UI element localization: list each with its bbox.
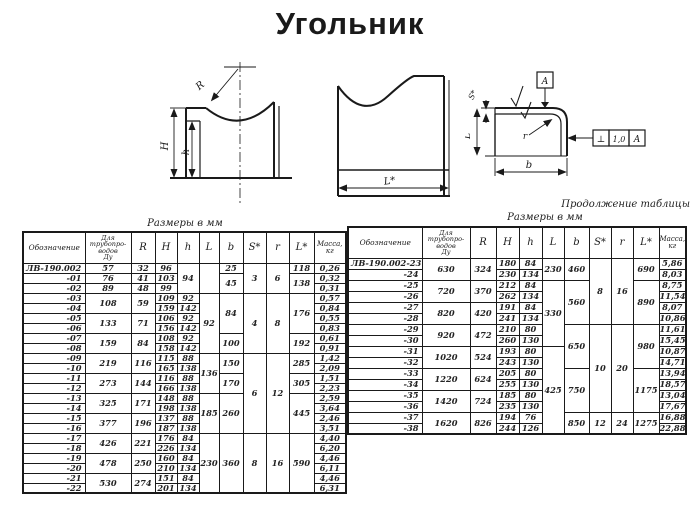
table-cell: 84: [519, 280, 542, 291]
table-cell: 92: [177, 293, 199, 303]
table-cell: 235: [496, 401, 519, 412]
table-cell: 10,86: [659, 313, 686, 324]
table-cell: 136: [199, 353, 219, 393]
table-cell: 16,88: [659, 412, 686, 423]
table-cell: 108: [155, 333, 177, 343]
table-cell: 13,94: [659, 368, 686, 379]
table-cell: -18: [23, 443, 85, 453]
table-cell: 820: [422, 302, 470, 324]
table-cell: 92: [177, 313, 199, 323]
table-cell: -01: [23, 273, 85, 283]
table-cell: 624: [470, 368, 496, 390]
table-cell: -14: [23, 403, 85, 413]
datum-letter: A: [541, 77, 549, 87]
table-cell: 426: [85, 433, 131, 453]
table-cell: -25: [348, 280, 422, 291]
table-cell: -36: [348, 401, 422, 412]
table-cell: 185: [199, 393, 219, 433]
table-cell: 241: [496, 313, 519, 324]
table-cell: -11: [23, 373, 85, 383]
table-cell: 980: [633, 324, 659, 368]
table-cell: 226: [155, 443, 177, 453]
tolerance-datum-letter: A: [633, 135, 641, 145]
table-cell: 273: [85, 373, 131, 393]
table-cell: -06: [23, 323, 85, 333]
table-cell: 17,67: [659, 401, 686, 412]
table-cell: 4: [243, 293, 266, 353]
table-cell: 210: [155, 463, 177, 473]
column-header: Масса, кг: [314, 232, 346, 263]
table-cell: -31: [348, 346, 422, 357]
table-cell: 57: [85, 263, 131, 273]
table-cell: 144: [131, 373, 155, 393]
table-cell: -27: [348, 302, 422, 313]
header-row: ОбозначениеДля трубопро- водов ДуRHhLbS*…: [23, 232, 346, 263]
table-cell: 8,03: [659, 269, 686, 280]
table-cell: 166: [155, 383, 177, 393]
table-cell: 274: [131, 473, 155, 493]
table-cell: 3: [243, 263, 266, 293]
table-cell: 0,32: [314, 273, 346, 283]
table-cell: -33: [348, 368, 422, 379]
table-cell: 76: [519, 412, 542, 423]
table-cell: 0,57: [314, 293, 346, 303]
tolerance-value: 1,0: [613, 135, 626, 144]
table-row: -371620826194768501224127516,88: [348, 412, 686, 423]
column-header: h: [177, 232, 199, 263]
table-cell: 724: [470, 390, 496, 412]
table-cell: 106: [155, 313, 177, 323]
table-cell: -38: [348, 423, 422, 434]
table-cell: 2,46: [314, 413, 346, 423]
table-cell: 115: [155, 353, 177, 363]
table-cell: 850: [564, 412, 589, 434]
table-cell: 138: [289, 273, 314, 293]
table-cell: 80: [519, 324, 542, 335]
table-cell: -02: [23, 283, 85, 293]
table-cell: 130: [519, 379, 542, 390]
column-header: L: [542, 227, 564, 258]
radius-leader: [212, 69, 238, 100]
table-cell: 22,88: [659, 423, 686, 434]
table-cell: 10,87: [659, 346, 686, 357]
table-continuation-caption: Продолжение таблицы: [540, 199, 690, 210]
table-cell: 13,04: [659, 390, 686, 401]
table-cell: 138: [177, 363, 199, 373]
table-cell: 15,45: [659, 335, 686, 346]
table-cell: 445: [289, 393, 314, 433]
column-header: R: [131, 232, 155, 263]
table-cell: 2,59: [314, 393, 346, 403]
dim-label-r: r: [523, 132, 528, 142]
units-caption-left: Размеры в мм: [120, 218, 250, 229]
dim-label-b: b: [526, 160, 532, 171]
table-cell: 260: [219, 393, 243, 433]
table-cell: 2,09: [314, 363, 346, 373]
table-cell: 201: [155, 483, 177, 493]
table-cell: 0,26: [314, 263, 346, 273]
table-cell: -07: [23, 333, 85, 343]
table-cell: 650: [564, 324, 589, 368]
table-cell: 185: [496, 390, 519, 401]
table-cell: 18,57: [659, 379, 686, 390]
table-cell: 1620: [422, 412, 470, 434]
column-header: L*: [633, 227, 659, 258]
table-cell: -35: [348, 390, 422, 401]
table-cell: -32: [348, 357, 422, 368]
table-row: ЛВ-190.002-23630324180842304608166905,86: [348, 258, 686, 269]
header-row: ОбозначениеДля трубопро- водов ДуRHhLbS*…: [348, 227, 686, 258]
table-cell: 305: [289, 373, 314, 393]
table-cell: -17: [23, 433, 85, 443]
dim-label-L-star: L*: [382, 175, 396, 188]
column-header: r: [611, 227, 633, 258]
table-cell: 244: [496, 423, 519, 434]
table-cell: -12: [23, 383, 85, 393]
table-cell: -28: [348, 313, 422, 324]
table-cell: 8: [266, 293, 289, 353]
column-header: L: [199, 232, 219, 263]
table-row: -25720370212843305608908,75: [348, 280, 686, 291]
table-cell: -22: [23, 483, 85, 493]
table-cell: 8: [589, 258, 611, 324]
table-cell: 148: [155, 393, 177, 403]
table-cell: 6,31: [314, 483, 346, 493]
table-cell: 142: [177, 303, 199, 313]
table-cell: 193: [496, 346, 519, 357]
table-cell: -10: [23, 363, 85, 373]
table-cell: 134: [519, 313, 542, 324]
table-cell: 142: [177, 323, 199, 333]
table-cell: 0,61: [314, 333, 346, 343]
table-cell: 230: [542, 258, 564, 280]
table-cell: 88: [177, 393, 199, 403]
table-cell: 12: [266, 353, 289, 433]
table-cell: -37: [348, 412, 422, 423]
table-cell: 138: [177, 383, 199, 393]
wall-inner-line: [186, 106, 279, 178]
table-cell: -20: [23, 463, 85, 473]
table-cell: 890: [633, 280, 659, 324]
table-cell: 196: [131, 413, 155, 433]
table-cell: 16: [266, 433, 289, 493]
dim-label-R: R: [193, 79, 207, 93]
table-cell: 1020: [422, 346, 470, 368]
table-cell: ЛВ-190.002: [23, 263, 85, 273]
table-cell: 116: [155, 373, 177, 383]
table-cell: 165: [155, 363, 177, 373]
table-cell: 118: [289, 263, 314, 273]
column-header: Для трубопро- водов Ду: [85, 232, 131, 263]
table-cell: 260: [496, 335, 519, 346]
table-row: -33122062420580750117513,94: [348, 368, 686, 379]
table-cell: -15: [23, 413, 85, 423]
column-header: r: [266, 232, 289, 263]
column-header: b: [219, 232, 243, 263]
table-cell: -26: [348, 291, 422, 302]
table-cell: 80: [519, 346, 542, 357]
table-cell: -34: [348, 379, 422, 390]
table-cell: 205: [496, 368, 519, 379]
table-cell: 262: [496, 291, 519, 302]
table-cell: 420: [470, 302, 496, 324]
table-cell: -04: [23, 303, 85, 313]
table-cell: 142: [177, 343, 199, 353]
table-cell: 460: [564, 258, 589, 280]
table-cell: 524: [470, 346, 496, 368]
table-cell: 84: [177, 453, 199, 463]
table-cell: 1175: [633, 368, 659, 412]
table-cell: 45: [219, 273, 243, 293]
table-cell: 8: [243, 433, 266, 493]
table-cell: 1,51: [314, 373, 346, 383]
table-cell: 2,23: [314, 383, 346, 393]
table-cell: 3,51: [314, 423, 346, 433]
table-cell: 96: [155, 263, 177, 273]
dim-label-S-star: S*: [467, 89, 479, 101]
units-caption-right: Размеры в мм: [475, 212, 615, 223]
table-cell: 170: [219, 373, 243, 393]
table-cell: 750: [564, 368, 589, 412]
table-cell: 25: [219, 263, 243, 273]
section-view-drawing: A r ⊥ 1,0 A S* L b: [465, 58, 695, 203]
table-cell: ЛВ-190.002-23: [348, 258, 422, 269]
table-cell: 160: [155, 453, 177, 463]
table-cell: 590: [289, 433, 314, 493]
table-cell: 1220: [422, 368, 470, 390]
plate-inner: [495, 108, 561, 156]
column-header: H: [155, 232, 177, 263]
table-cell: 130: [519, 401, 542, 412]
table-cell: 84: [177, 433, 199, 443]
table-cell: 324: [470, 258, 496, 280]
column-header: R: [470, 227, 496, 258]
table-cell: 194: [496, 412, 519, 423]
column-header: Обозначение: [23, 232, 85, 263]
table-cell: 11,54: [659, 291, 686, 302]
column-header: Масса, кг: [659, 227, 686, 258]
table-cell: 159: [85, 333, 131, 353]
side-view-drawing: L*: [322, 58, 467, 208]
table-cell: 530: [85, 473, 131, 493]
table-cell: -16: [23, 423, 85, 433]
table-cell: -21: [23, 473, 85, 483]
table-cell: 255: [496, 379, 519, 390]
table-cell: 212: [496, 280, 519, 291]
table-cell: [199, 263, 219, 293]
table-cell: 20: [611, 324, 633, 412]
table-row: -0310859109929284481760,57: [23, 293, 346, 303]
column-header: h: [519, 227, 542, 258]
table-cell: 826: [470, 412, 496, 434]
table-cell: 221: [131, 433, 155, 453]
table-cell: 6,20: [314, 443, 346, 453]
table-cell: 478: [85, 453, 131, 473]
table-cell: -05: [23, 313, 85, 323]
table-cell: 14,71: [659, 357, 686, 368]
table-cell: 92: [199, 293, 219, 353]
table-cell: 720: [422, 280, 470, 302]
table-row: -09219116115881361506122851,42: [23, 353, 346, 363]
table-cell: 0,84: [314, 303, 346, 313]
table-cell: 88: [177, 353, 199, 363]
table-cell: 360: [219, 433, 243, 493]
table-cell: 1275: [633, 412, 659, 434]
table-cell: 80: [519, 368, 542, 379]
table-cell: 130: [519, 357, 542, 368]
table-cell: 230: [496, 269, 519, 280]
roughness-icon: [511, 86, 531, 118]
table-cell: 0,55: [314, 313, 346, 323]
table-cell: 84: [519, 258, 542, 269]
table-cell: 198: [155, 403, 177, 413]
table-cell: 41: [131, 273, 155, 283]
table-cell: 59: [131, 293, 155, 313]
table-cell: 108: [85, 293, 131, 313]
dimensions-table-continuation: ОбозначениеДля трубопро- водов ДуRHhLbS*…: [347, 226, 687, 435]
table-cell: 134: [519, 269, 542, 280]
table-cell: 180: [496, 258, 519, 269]
table-cell: 12: [589, 412, 611, 434]
table-cell: 84: [519, 302, 542, 313]
table-cell: 8,75: [659, 280, 686, 291]
table-cell: 6: [266, 263, 289, 293]
table-cell: 1,42: [314, 353, 346, 363]
table-cell: -09: [23, 353, 85, 363]
table-cell: 210: [496, 324, 519, 335]
table-cell: 330: [542, 280, 564, 346]
table-cell: -13: [23, 393, 85, 403]
table-cell: 109: [155, 293, 177, 303]
table-cell: 71: [131, 313, 155, 333]
table-cell: 370: [470, 280, 496, 302]
dim-label-H: H: [160, 141, 171, 151]
table-row: -2992047221080650102098011,61: [348, 324, 686, 335]
table-cell: 126: [519, 423, 542, 434]
table-cell: 690: [633, 258, 659, 280]
table-cell: 0,91: [314, 343, 346, 353]
table-cell: 116: [131, 353, 155, 373]
table-cell: 191: [496, 302, 519, 313]
table-cell: 325: [85, 393, 131, 413]
perpendicularity-icon: ⊥: [597, 135, 605, 145]
table-cell: 6: [243, 353, 266, 433]
table-cell: 158: [155, 343, 177, 353]
table-cell: -24: [348, 269, 422, 280]
table-cell: 560: [564, 280, 589, 324]
table-cell: -03: [23, 293, 85, 303]
column-header: H: [496, 227, 519, 258]
table-cell: 134: [177, 443, 199, 453]
table-cell: 99: [155, 283, 177, 293]
table-cell: 0,83: [314, 323, 346, 333]
table-cell: 94: [177, 263, 199, 293]
column-header: b: [564, 227, 589, 258]
table-row: -0715984108921001920,61: [23, 333, 346, 343]
table-cell: 250: [131, 453, 155, 473]
table-cell: 16: [611, 258, 633, 324]
part-outline: [170, 102, 292, 178]
corner-radius-leader: [529, 120, 551, 135]
table-cell: 425: [542, 346, 564, 434]
dimensions-table-main: ОбозначениеДля трубопро- водов ДуRHhLbS*…: [22, 231, 347, 494]
table-cell: 88: [177, 373, 199, 383]
table-cell: 171: [131, 393, 155, 413]
table-cell: 32: [131, 263, 155, 273]
table-cell: 1420: [422, 390, 470, 412]
table-cell: 76: [85, 273, 131, 283]
table-row: -13325171148881852604452,59: [23, 393, 346, 403]
column-header: Для трубопро- водов Ду: [422, 227, 470, 258]
column-header: Обозначение: [348, 227, 422, 258]
table-cell: -08: [23, 343, 85, 353]
table-cell: 4,46: [314, 453, 346, 463]
table-cell: 84: [219, 293, 243, 333]
table-cell: -30: [348, 335, 422, 346]
front-view-drawing: R H h: [140, 58, 340, 208]
table-cell: 103: [155, 273, 177, 283]
table-cell: 3,64: [314, 403, 346, 413]
page-title: Угольник: [0, 6, 700, 42]
table-cell: 377: [85, 413, 131, 433]
table-cell: 243: [496, 357, 519, 368]
column-header: S*: [589, 227, 611, 258]
table-cell: 219: [85, 353, 131, 373]
table-cell: 134: [177, 463, 199, 473]
table-cell: 80: [519, 390, 542, 401]
dim-label-L: L: [465, 133, 473, 140]
table-cell: 24: [611, 412, 633, 434]
table-cell: 134: [519, 291, 542, 302]
table-row: -11273144116881703051,51: [23, 373, 346, 383]
table-cell: 192: [289, 333, 314, 353]
table-cell: 137: [155, 413, 177, 423]
table-cell: 133: [85, 313, 131, 333]
table-cell: 100: [219, 333, 243, 353]
table-cell: 472: [470, 324, 496, 346]
table-cell: 630: [422, 258, 470, 280]
table-cell: 4,46: [314, 473, 346, 483]
table-cell: 11,61: [659, 324, 686, 335]
table-cell: 84: [177, 473, 199, 483]
table-cell: 6,11: [314, 463, 346, 473]
table-cell: 176: [155, 433, 177, 443]
table-cell: 130: [519, 335, 542, 346]
table-cell: 176: [289, 293, 314, 333]
dim-extension: [481, 108, 567, 176]
table-cell: 138: [177, 403, 199, 413]
table-cell: 159: [155, 303, 177, 313]
table-cell: -29: [348, 324, 422, 335]
table-cell: 920: [422, 324, 470, 346]
table-cell: 10: [589, 324, 611, 412]
table-cell: 92: [177, 333, 199, 343]
table-cell: 8,07: [659, 302, 686, 313]
column-header: L*: [289, 232, 314, 263]
table-cell: 84: [131, 333, 155, 353]
dim-label-h: h: [181, 149, 192, 155]
table-cell: 187: [155, 423, 177, 433]
table-cell: 89: [85, 283, 131, 293]
table-cell: -19: [23, 453, 85, 463]
table-row: -17426221176842303608165904,40: [23, 433, 346, 443]
table-cell: 151: [155, 473, 177, 483]
table-cell: 0,31: [314, 283, 346, 293]
table-cell: 150: [219, 353, 243, 373]
column-header: S*: [243, 232, 266, 263]
table-cell: 134: [177, 483, 199, 493]
table-cell: 88: [177, 413, 199, 423]
